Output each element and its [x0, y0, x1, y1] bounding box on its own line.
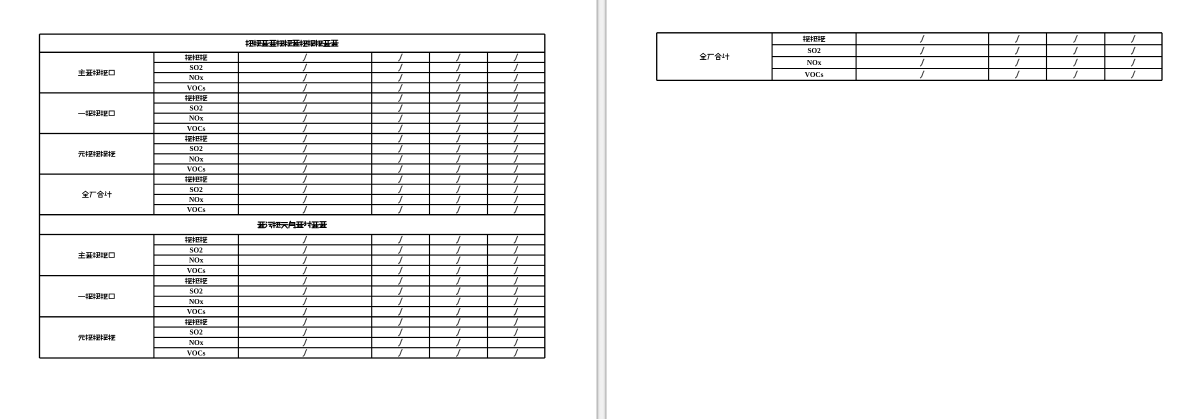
svg-text:VOCs: VOCs — [187, 125, 206, 133]
svg-text:VOCs: VOCs — [187, 206, 206, 214]
svg-text:VOCs: VOCs — [187, 308, 206, 316]
svg-text:NOx: NOx — [189, 74, 204, 82]
svg-text:NOx: NOx — [189, 115, 204, 123]
svg-text:NOx: NOx — [807, 59, 822, 67]
svg-text:NOx: NOx — [189, 257, 204, 265]
svg-text:SO2: SO2 — [808, 47, 822, 55]
svg-text:VOCs: VOCs — [187, 349, 206, 357]
svg-text:VOCs: VOCs — [187, 165, 206, 173]
svg-text:SO2: SO2 — [190, 186, 204, 194]
svg-text:SO2: SO2 — [190, 246, 204, 254]
svg-text:VOCs: VOCs — [187, 84, 206, 92]
svg-text:SO2: SO2 — [190, 105, 204, 113]
svg-text:SO2: SO2 — [190, 64, 204, 72]
svg-text:VOCs: VOCs — [805, 71, 824, 79]
svg-text:SO2: SO2 — [190, 329, 204, 337]
svg-text:NOx: NOx — [189, 155, 204, 163]
svg-text:VOCs: VOCs — [187, 267, 206, 275]
svg-text:NOx: NOx — [189, 298, 204, 306]
svg-text:NOx: NOx — [189, 339, 204, 347]
svg-text:SO2: SO2 — [190, 288, 204, 296]
svg-text:SO2: SO2 — [190, 145, 204, 153]
svg-text:NOx: NOx — [189, 196, 204, 204]
